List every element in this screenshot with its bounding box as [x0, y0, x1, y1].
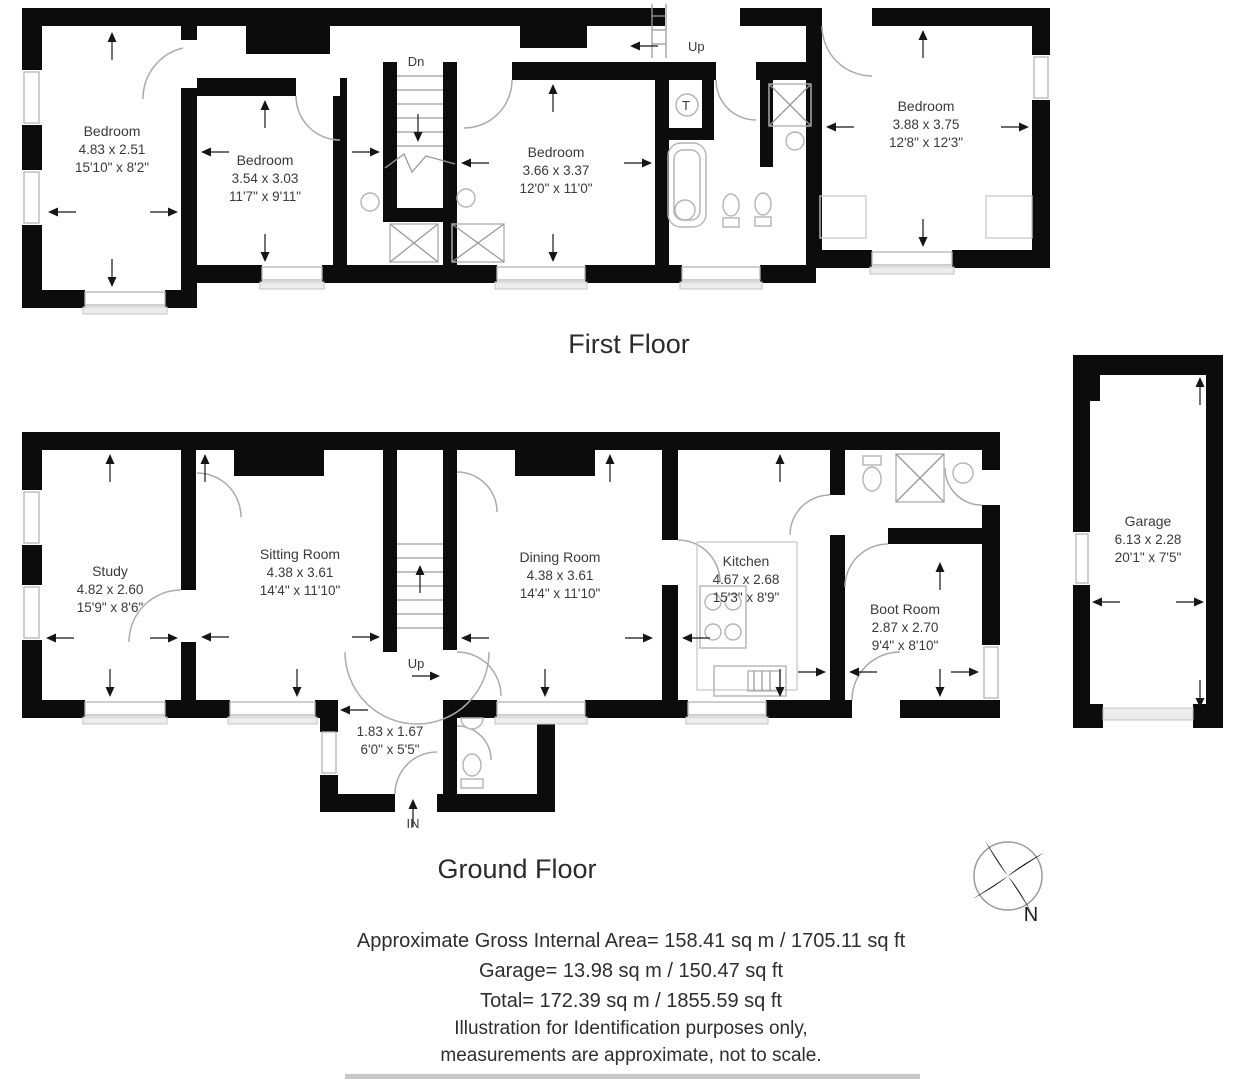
room-metric: 4.38 x 3.61: [267, 565, 334, 580]
toilet-icon: [755, 193, 771, 215]
wardrobe-icon: [986, 196, 1032, 238]
sink-icon: [675, 200, 695, 220]
entrance-in-label: IN: [407, 816, 420, 831]
tank-label: T: [682, 98, 690, 113]
room-label-dining-room: Dining Room 4.38 x 3.61 14'4" x 11'10": [520, 549, 601, 601]
room-name: Boot Room: [870, 601, 940, 617]
room-imperial: 15'3" x 8'9": [713, 590, 780, 605]
sink-icon: [361, 193, 379, 211]
room-label-sitting-room: Sitting Room 4.38 x 3.61 14'4" x 11'10": [260, 546, 341, 598]
compass-rose: N: [972, 840, 1043, 926]
room-name: Bedroom: [237, 152, 294, 168]
footer-text: Approximate Gross Internal Area= 158.41 …: [345, 930, 920, 1079]
room-imperial: 15'10" x 8'2": [75, 160, 149, 175]
room-imperial: 11'7" x 9'11": [229, 189, 301, 204]
toilet-icon: [863, 467, 881, 491]
room-metric: 1.83 x 1.67: [357, 724, 424, 739]
truncated-text-strip: [345, 1074, 920, 1079]
room-label-garage: Garage 6.13 x 2.28 20'1" x 7'5": [1115, 513, 1182, 565]
room-name: Garage: [1125, 513, 1172, 529]
room-metric: 4.83 x 2.51: [79, 142, 146, 157]
room-label-entrance-hall: 1.83 x 1.67 6'0" x 5'5": [357, 724, 424, 757]
first-floor-plan: Bedroom 4.83 x 2.51 15'10" x 8'2" Bedroo…: [22, 4, 1050, 359]
room-imperial: 15'9" x 8'6": [77, 600, 144, 615]
stairs-down-label: Dn: [408, 54, 425, 69]
room-imperial: 14'4" x 11'10": [520, 586, 601, 601]
sink-icon: [457, 189, 475, 207]
toilet-icon: [723, 194, 739, 216]
staircase-up: [397, 544, 443, 628]
room-imperial: 12'0" x 11'0": [519, 181, 592, 196]
room-label-bedroom1: Bedroom 4.83 x 2.51 15'10" x 8'2": [75, 123, 149, 175]
stairs-up-label: Up: [688, 39, 705, 54]
garage-plan: Garage 6.13 x 2.28 20'1" x 7'5": [1073, 355, 1223, 728]
compass-north-label: N: [1024, 904, 1038, 926]
room-metric: 2.87 x 2.70: [872, 620, 939, 635]
room-metric: 3.54 x 3.03: [232, 171, 299, 186]
sink-icon: [953, 463, 973, 483]
garage-door: [1103, 708, 1193, 720]
room-imperial: 9'4" x 8'10": [872, 638, 939, 653]
gross-internal-area-line: Approximate Gross Internal Area= 158.41 …: [357, 930, 906, 952]
garage-window: [1076, 534, 1088, 583]
disclaimer-line-1: Illustration for Identification purposes…: [454, 1018, 807, 1039]
ground-floor-plan: Study 4.82 x 2.60 15'9" x 8'6" Sitting R…: [22, 432, 1000, 884]
room-name: Kitchen: [723, 553, 770, 569]
room-imperial: 20'1" x 7'5": [1115, 550, 1182, 565]
floor-plan-page: Bedroom 4.83 x 2.51 15'10" x 8'2" Bedroo…: [0, 0, 1243, 1080]
room-label-kitchen: Kitchen 4.67 x 2.68 15'3" x 8'9": [713, 553, 780, 605]
room-name: Bedroom: [528, 144, 585, 160]
stairs-up-label: Up: [408, 656, 425, 671]
garage-area-line: Garage= 13.98 sq m / 150.47 sq ft: [479, 960, 784, 982]
room-name: Dining Room: [520, 549, 601, 565]
compass-needle-icon: [972, 840, 1043, 911]
room-imperial: 14'4" x 11'10": [260, 583, 341, 598]
room-label-bedroom2: Bedroom 3.54 x 3.03 11'7" x 9'11": [229, 152, 301, 204]
first-floor-title: First Floor: [568, 329, 690, 359]
room-imperial: 12'8" x 12'3": [889, 135, 963, 150]
room-metric: 4.67 x 2.68: [713, 572, 780, 587]
ground-floor-doors: [129, 468, 982, 794]
room-label-bedroom3: Bedroom 3.66 x 3.37 12'0" x 11'0": [519, 144, 592, 196]
room-label-bedroom4: Bedroom 3.88 x 3.75 12'8" x 12'3": [889, 98, 963, 150]
room-metric: 3.66 x 3.37: [523, 163, 590, 178]
room-name: Study: [92, 563, 128, 579]
room-imperial: 6'0" x 5'5": [360, 742, 419, 757]
ground-floor-title: Ground Floor: [437, 854, 596, 884]
room-name: Bedroom: [898, 98, 955, 114]
sink-icon: [786, 132, 804, 150]
room-metric: 4.82 x 2.60: [77, 582, 144, 597]
room-label-boot-room: Boot Room 2.87 x 2.70 9'4" x 8'10": [870, 601, 940, 653]
disclaimer-line-2: measurements are approximate, not to sca…: [440, 1045, 821, 1066]
room-metric: 3.88 x 3.75: [893, 117, 960, 132]
room-name: Sitting Room: [260, 546, 340, 562]
room-metric: 6.13 x 2.28: [1115, 532, 1182, 547]
room-metric: 4.38 x 3.61: [527, 568, 594, 583]
wardrobe-icon: [820, 196, 866, 238]
ground-floor-windows: [24, 492, 998, 773]
room-name: Bedroom: [84, 123, 141, 139]
room-label-study: Study 4.82 x 2.60 15'9" x 8'6": [77, 563, 144, 615]
floor-plan-drawing: Bedroom 4.83 x 2.51 15'10" x 8'2" Bedroo…: [0, 0, 1243, 1080]
ground-floor-walls: [22, 432, 1000, 812]
toilet-icon: [463, 754, 481, 776]
total-area-line: Total= 172.39 sq m / 1855.59 sq ft: [480, 990, 782, 1012]
